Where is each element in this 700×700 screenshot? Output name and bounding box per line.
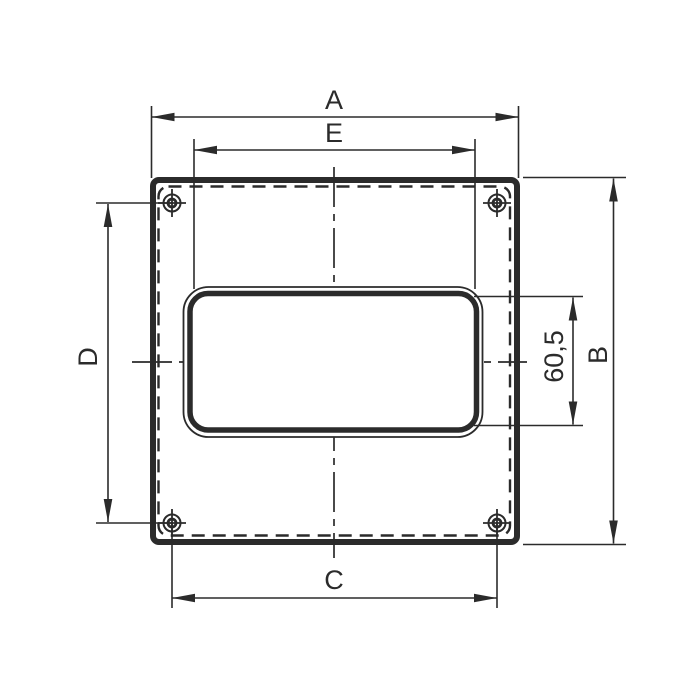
arrowhead-left <box>152 113 175 122</box>
arrowhead-left <box>194 146 217 155</box>
arrowhead-up <box>104 204 113 227</box>
arrowhead-up <box>569 298 578 321</box>
arrowhead-left <box>172 594 195 603</box>
arrowhead-down <box>104 499 113 522</box>
flat-duct-wall-plate-drawing: A E B 60,5 D <box>0 0 700 700</box>
technical-drawing-page: A E B 60,5 D <box>0 0 700 700</box>
arrowhead-right <box>452 146 475 155</box>
dimension-label-d: D <box>73 347 103 367</box>
arrowhead-down <box>569 402 578 425</box>
dimension-label-c: C <box>324 565 344 595</box>
dimension-label-a: A <box>325 85 343 115</box>
duct-opening <box>184 287 483 437</box>
dimension-label-e: E <box>325 118 343 148</box>
arrowhead-right <box>496 113 519 122</box>
dimension-label-b: B <box>583 346 613 364</box>
duct-opening-outer-edge <box>184 287 483 437</box>
arrowhead-up <box>609 179 618 202</box>
dimension-label-60-5: 60,5 <box>539 330 569 383</box>
arrowhead-right <box>474 594 497 603</box>
arrowhead-down <box>609 521 618 544</box>
